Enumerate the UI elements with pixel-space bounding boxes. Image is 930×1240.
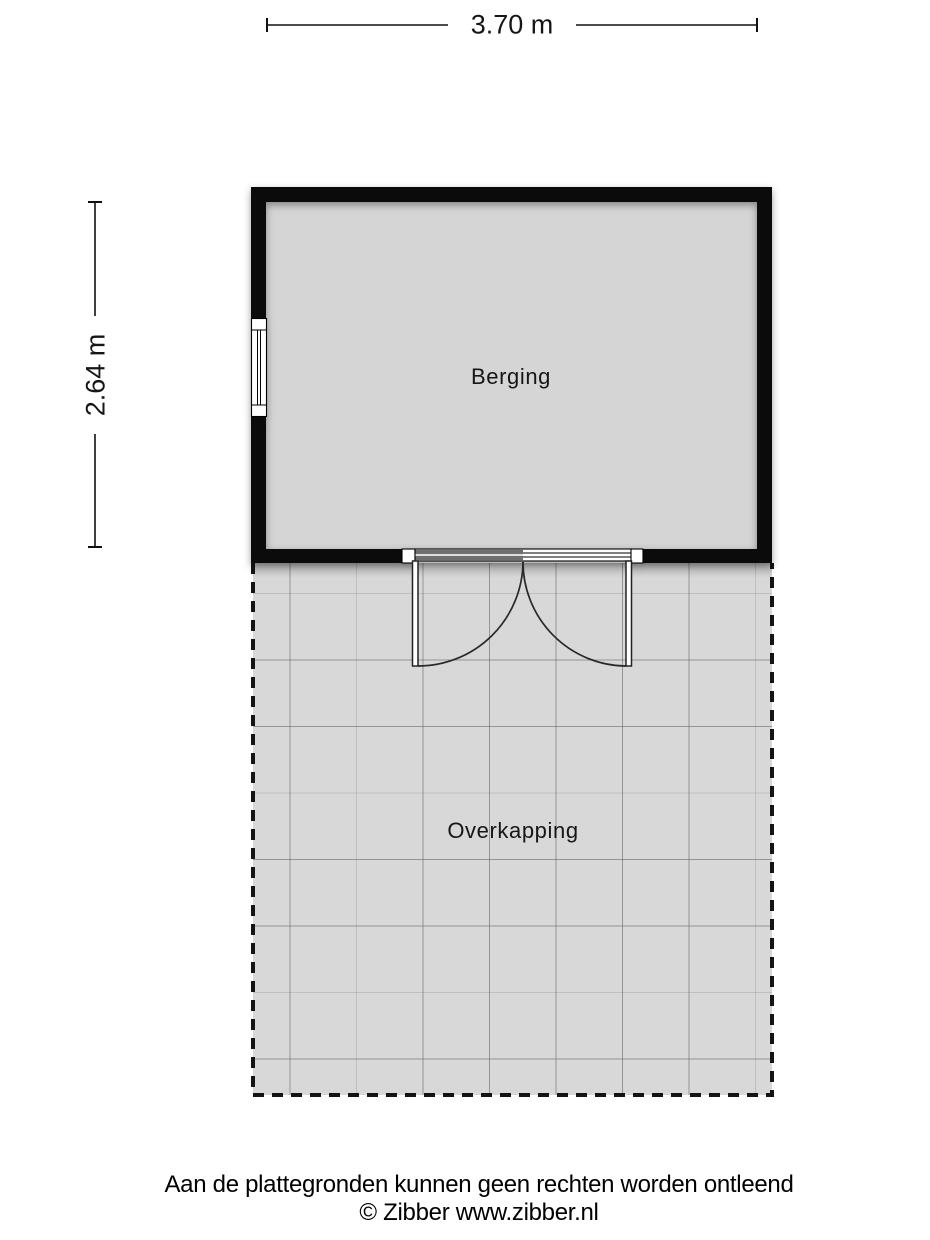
wall-right [757, 187, 772, 563]
door-leaf-left [413, 561, 419, 666]
footer-disclaimer: Aan de plattegronden kunnen geen rechten… [28, 1171, 930, 1199]
wall-shadow-gradient [253, 563, 772, 578]
footer-copyright: © Zibber www.zibber.nl [28, 1199, 930, 1227]
footer: Aan de plattegronden kunnen geen rechten… [0, 1171, 930, 1227]
dimension-height-label: 2.64 m [81, 334, 112, 417]
wall-bottom-right [643, 549, 772, 563]
wall-left-lower [251, 417, 266, 563]
door-leaf-right [626, 561, 632, 666]
window-frame [252, 319, 267, 417]
door-opening [402, 549, 643, 563]
room-label-berging: Berging [471, 364, 551, 390]
wall-top [251, 187, 772, 202]
dimension-width-label: 3.70 m [471, 10, 554, 41]
wall-left-upper [251, 187, 266, 318]
floorplan-canvas: 3.70 m 2.64 m Berging Overkapping Aan de… [0, 0, 930, 1240]
room-label-overkapping: Overkapping [447, 818, 578, 844]
floorplan-svg [0, 0, 930, 1240]
wall-bottom-left [251, 549, 402, 563]
window-symbol [252, 319, 267, 417]
